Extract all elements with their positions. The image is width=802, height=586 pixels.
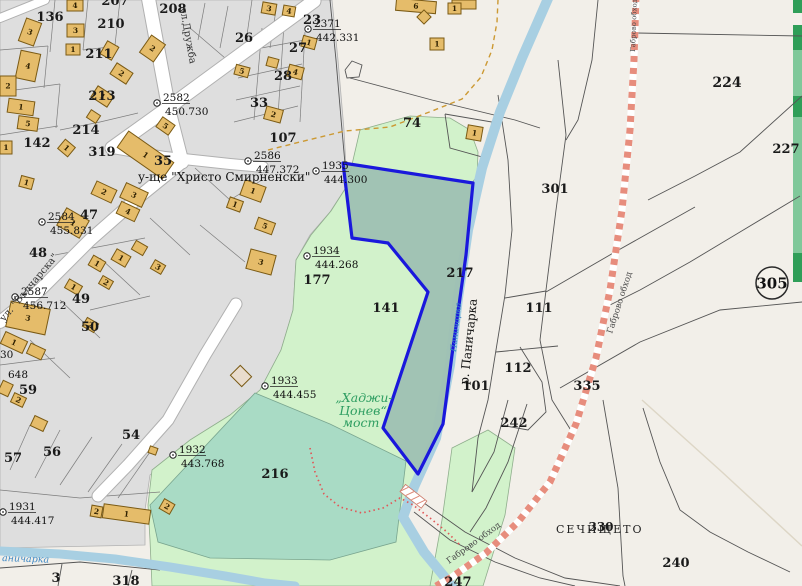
building-number: 1	[70, 45, 75, 54]
parcel-number-label: 50	[81, 320, 99, 335]
parcel-number-label: 23	[303, 13, 321, 28]
parcel-number-label: 107	[269, 131, 296, 146]
road-shield-number: 305	[756, 275, 787, 293]
forest-strip	[793, 25, 802, 50]
parcel-number-label: 319	[88, 145, 115, 160]
survey-point-dot	[2, 511, 4, 513]
survey-point-id: 2582	[163, 92, 190, 104]
school-label: у-ще "Христо Смирненски"	[138, 170, 310, 184]
parcel-number-label: 54	[122, 428, 140, 443]
survey-point-id: 1931	[9, 501, 36, 513]
parcel-number-label: 56	[43, 445, 61, 460]
building: 2	[0, 76, 16, 96]
survey-point-dot	[41, 221, 43, 223]
parcel-number-label: 74	[403, 116, 421, 131]
building: 1	[466, 125, 483, 141]
building: 1	[7, 98, 35, 115]
forest-strip	[793, 50, 802, 96]
building-number: 1	[3, 143, 8, 152]
survey-point-elevation: 450.730	[165, 106, 208, 118]
survey-point-elevation: 443.768	[181, 458, 224, 470]
parcel-number-label: 57	[4, 451, 22, 466]
parcel-number-label: 112	[504, 361, 531, 376]
building: 1	[430, 38, 444, 50]
building: 2	[90, 505, 103, 518]
forest-strip	[793, 253, 802, 282]
parcel-number-label: 211	[85, 47, 112, 62]
survey-point-id: 2584	[48, 211, 75, 223]
building-number: 3	[73, 26, 78, 35]
parcel-number-label: 335	[573, 379, 600, 394]
parcel-number-label: 301	[541, 182, 568, 197]
parcel-number-label: 240	[662, 556, 689, 571]
survey-point-elevation: 444.417	[11, 515, 54, 527]
parcel-number-label: 33	[250, 96, 268, 111]
map-viewport[interactable]: 3421511431221511234111321211221231153613…	[0, 0, 802, 586]
layer-road-shield: 305	[756, 267, 788, 299]
map-canvas[interactable]: 3421511431221511234111321211221231153613…	[0, 0, 802, 586]
building: 5	[17, 116, 39, 132]
parcel-number-label: 247	[444, 575, 471, 586]
building: 1	[448, 3, 461, 14]
parcel-number-label: 49	[72, 292, 90, 307]
survey-point-id: 1934	[313, 245, 340, 257]
survey-point-elevation: 455.831	[50, 225, 93, 237]
building: 4	[282, 5, 296, 17]
parcel-number-label: 136	[36, 10, 63, 25]
bridge-label-line3: мост	[343, 415, 380, 430]
survey-point-id: 1933	[271, 375, 298, 387]
parcel-number-label: 207	[101, 0, 128, 9]
parcel-number-label: 142	[23, 136, 50, 151]
building: 1	[66, 44, 80, 55]
survey-point-dot	[307, 28, 309, 30]
parcel-number-label: 27	[289, 41, 307, 56]
parcel-number-label: 227	[772, 142, 799, 157]
parcel-number-label: 242	[500, 416, 527, 431]
parcel-number-label: 213	[88, 89, 115, 104]
survey-point-id: 1932	[179, 444, 206, 456]
survey-point-dot	[315, 170, 317, 172]
parcel-number-label: 141	[372, 301, 399, 316]
survey-point-dot	[247, 160, 249, 162]
parcel-number-label: 59	[19, 383, 37, 398]
parcel-number-label: 216	[261, 467, 288, 482]
building-number: 6	[413, 1, 419, 10]
survey-point-elevation: 444.300	[324, 174, 367, 186]
building: 3	[261, 2, 277, 15]
survey-point-elevation: 444.455	[273, 389, 316, 401]
parcel-number-label: 111	[525, 301, 552, 316]
building: 3	[67, 24, 84, 37]
survey-point-dot	[264, 385, 266, 387]
survey-point-dot	[306, 255, 308, 257]
forest-strip	[793, 0, 802, 13]
building-number: 1	[452, 4, 457, 13]
survey-point-dot	[156, 102, 158, 104]
parcel-number-label: 224	[712, 75, 741, 91]
building-number: 1	[434, 40, 439, 49]
parcel-number-label: 214	[72, 123, 99, 138]
parcel-number-label: 26	[235, 31, 253, 46]
building-number: 2	[5, 82, 10, 91]
forest-strip	[793, 96, 802, 117]
parcel-number-label: 3	[51, 571, 60, 586]
parcel-number-label: 210	[97, 17, 124, 32]
parcel-number-label: 318	[112, 574, 139, 586]
parcel-number-label: 217	[446, 266, 473, 281]
partial-label: 30	[0, 349, 13, 361]
layer-base	[0, 0, 802, 586]
partial-label: 648	[8, 369, 28, 381]
parcel-number-label: 28	[274, 69, 292, 84]
survey-point-dot	[172, 454, 174, 456]
locality-label-sechishteto: СЕЧИЩЕТО	[556, 523, 643, 536]
building: 4	[67, 0, 83, 11]
survey-point-id: 2586	[254, 150, 281, 162]
survey-point-elevation: 456.712	[23, 300, 66, 312]
survey-point-id: 1935	[322, 160, 349, 172]
parcel-number-label: 35	[154, 154, 172, 169]
parcel-number-label: 47	[80, 208, 98, 223]
building-number: 4	[72, 1, 77, 10]
building: 1	[0, 141, 12, 154]
survey-point-elevation: 444.268	[315, 259, 358, 271]
layer-forest-strips	[793, 0, 802, 282]
parcel-number-label: 48	[29, 246, 47, 261]
parcel-number-label: 177	[303, 273, 330, 288]
forest-strip	[793, 117, 802, 253]
survey-point-elevation: 442.331	[316, 32, 359, 44]
river-name-bottom: аничарка	[2, 553, 50, 566]
